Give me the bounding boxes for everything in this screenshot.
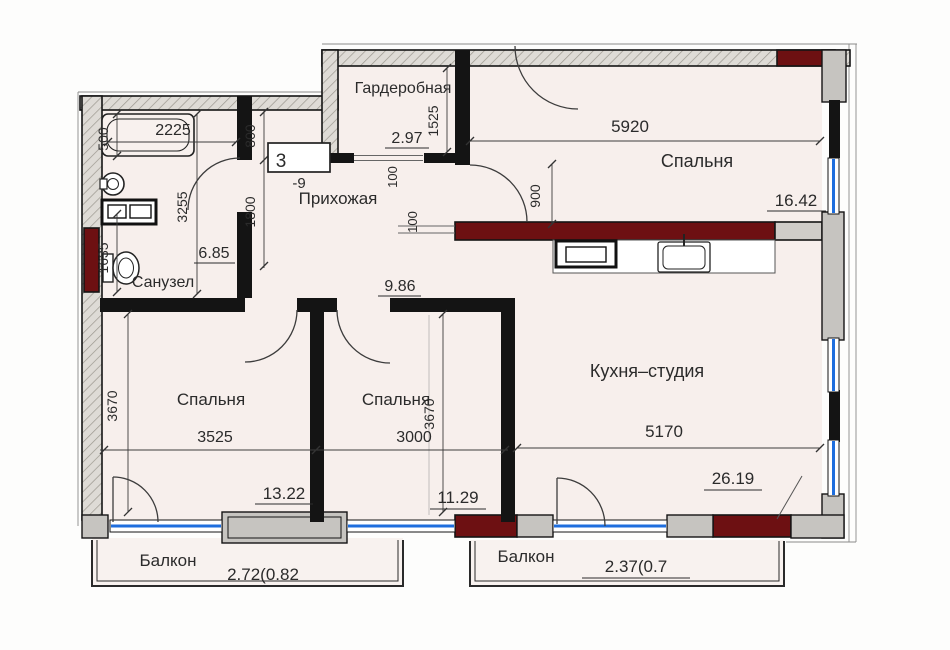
room-label-bedroom-middle: Спальня bbox=[362, 390, 430, 409]
wall-top bbox=[322, 50, 850, 66]
area-bedroom-middle: 11.29 bbox=[437, 488, 478, 507]
room-label-bedroom-right: Спальня bbox=[661, 151, 733, 171]
dim-kitchen-width: 5170 bbox=[645, 422, 683, 441]
wall-top-left bbox=[80, 96, 338, 110]
dim-partition-a: 100 bbox=[385, 166, 400, 188]
area-wardrobe: 2.97 bbox=[391, 130, 422, 147]
dim-bathroom-depth: 3255 bbox=[174, 191, 190, 222]
dim-bedroom-middle-width: 3000 bbox=[396, 429, 432, 446]
area-hallway: 9.86 bbox=[384, 278, 415, 295]
dim-bedroom-right-door: 900 bbox=[527, 184, 543, 208]
stove-icon bbox=[556, 241, 616, 267]
washer-icon bbox=[102, 200, 156, 224]
dim-partition-b: 100 bbox=[405, 211, 420, 233]
wall-bedrooms-divider bbox=[310, 298, 324, 522]
dim-wardrobe-depth: 1525 bbox=[425, 105, 441, 136]
wall bbox=[829, 390, 840, 442]
wall-red-bottom-2 bbox=[713, 515, 791, 537]
room-label-kitchen: Кухня–студия bbox=[590, 361, 704, 381]
wall bbox=[297, 298, 310, 312]
pier bbox=[822, 212, 844, 340]
wall-red-kitchen bbox=[455, 222, 775, 240]
floor-plan-drawing: 2225 500 1635 3255 800 1800 1525 100 100… bbox=[0, 0, 950, 650]
wall-kitchen-divider bbox=[501, 298, 515, 522]
area-balcony-left: 2.72(0.82 bbox=[227, 565, 299, 584]
room-label-wardrobe: Гардеробная bbox=[355, 80, 452, 97]
wall-bedroom-middle-top bbox=[390, 298, 511, 312]
area-balcony-right: 2.37(0.7 bbox=[605, 557, 667, 576]
room-label-bedroom-left: Спальня bbox=[177, 390, 245, 409]
pier bbox=[82, 515, 108, 538]
pier bbox=[667, 515, 713, 537]
dim-hall-niche-top: 800 bbox=[242, 124, 258, 148]
dim-bathtub: 500 bbox=[95, 127, 111, 151]
wall bbox=[829, 100, 840, 158]
area-bedroom-left: 13.22 bbox=[263, 484, 306, 503]
wall-wardrobe-bottom-b bbox=[424, 153, 457, 163]
dim-bathroom-width: 2225 bbox=[155, 122, 191, 139]
room-label-hallway: Прихожая bbox=[299, 189, 378, 208]
pier bbox=[822, 50, 846, 102]
wall-left bbox=[82, 96, 102, 520]
room-label-bathroom: Санузел bbox=[132, 274, 194, 291]
dim-bathroom-side: 1635 bbox=[95, 242, 111, 273]
dim-bedroom-right-width: 5920 bbox=[611, 117, 649, 136]
room-label-balcony-right: Балкон bbox=[497, 547, 554, 566]
dim-hall-niche-bottom: 1800 bbox=[242, 196, 258, 227]
area-kitchen: 26.19 bbox=[712, 469, 755, 488]
pier bbox=[791, 515, 844, 538]
room-label-balcony-left: Балкон bbox=[139, 551, 196, 570]
unit-number: 3 bbox=[276, 151, 287, 172]
basin-tap bbox=[100, 179, 107, 189]
area-bathroom: 6.85 bbox=[198, 245, 229, 262]
dim-bedroom-left-width: 3525 bbox=[197, 429, 233, 446]
area-bedroom-right: 16.42 bbox=[775, 191, 818, 210]
wall-bedroom-right-left bbox=[455, 50, 470, 165]
dim-bedroom-left-depth: 3670 bbox=[104, 390, 120, 421]
pier bbox=[517, 515, 553, 537]
wall bbox=[324, 298, 337, 312]
wall-segment-gray bbox=[775, 222, 822, 240]
wall-bedroom-left-top bbox=[100, 298, 245, 312]
floor-plan: 2225 500 1635 3255 800 1800 1525 100 100… bbox=[0, 0, 950, 650]
